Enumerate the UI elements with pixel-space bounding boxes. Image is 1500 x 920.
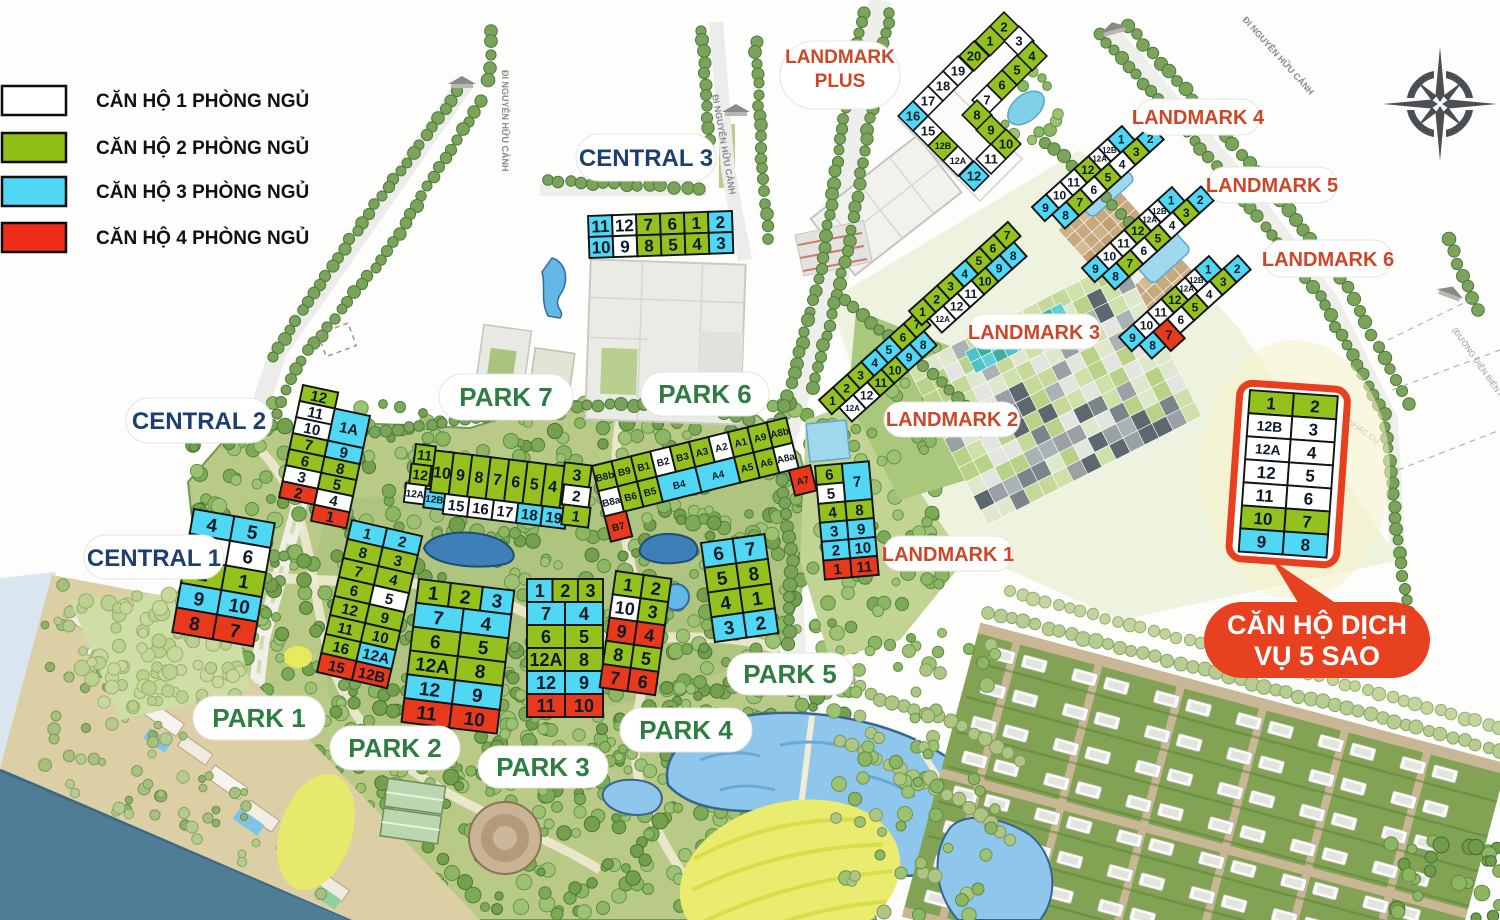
svg-text:9: 9	[1129, 331, 1136, 345]
svg-text:5: 5	[1155, 231, 1162, 245]
svg-text:VỤ 5 SAO: VỤ 5 SAO	[1254, 641, 1380, 671]
svg-text:12: 12	[860, 389, 874, 403]
svg-text:LANDMARK 6: LANDMARK 6	[1262, 249, 1394, 271]
svg-text:PARK 1: PARK 1	[212, 703, 305, 733]
svg-text:3: 3	[829, 523, 839, 541]
svg-text:8: 8	[579, 650, 589, 670]
svg-text:18: 18	[936, 79, 950, 94]
svg-text:CĂN HỘ 1 PHÒNG NGỦ: CĂN HỘ 1 PHÒNG NGỦ	[96, 90, 309, 112]
svg-text:12: 12	[615, 216, 635, 236]
svg-text:CĂN HỘ 3 PHÒNG NGỦ: CĂN HỘ 3 PHÒNG NGỦ	[96, 181, 309, 203]
svg-text:1: 1	[1266, 394, 1277, 414]
svg-text:LANDMARK 5: LANDMARK 5	[1206, 175, 1338, 197]
svg-text:9: 9	[996, 262, 1003, 276]
svg-text:2: 2	[831, 542, 841, 560]
svg-text:11: 11	[984, 152, 998, 167]
svg-text:8: 8	[644, 236, 654, 255]
svg-text:10: 10	[1253, 509, 1273, 529]
svg-text:12B: 12B	[935, 141, 952, 151]
svg-text:7: 7	[1302, 512, 1313, 532]
svg-text:3: 3	[716, 234, 726, 253]
svg-text:2: 2	[1000, 20, 1007, 35]
svg-text:3: 3	[1308, 420, 1319, 440]
svg-text:6: 6	[990, 241, 997, 255]
svg-text:10: 10	[999, 137, 1013, 152]
svg-text:10: 10	[1103, 249, 1117, 263]
svg-text:4: 4	[1028, 49, 1036, 64]
svg-text:PARK 4: PARK 4	[639, 715, 733, 745]
svg-text:4: 4	[1206, 288, 1213, 302]
svg-text:9: 9	[987, 123, 994, 138]
svg-text:2: 2	[843, 381, 850, 395]
svg-text:10: 10	[574, 696, 594, 716]
svg-text:10: 10	[591, 238, 611, 258]
svg-text:11: 11	[874, 376, 887, 390]
svg-text:12: 12	[950, 300, 964, 314]
svg-text:7: 7	[1004, 229, 1011, 243]
svg-text:5: 5	[1305, 466, 1316, 486]
svg-text:3: 3	[1183, 206, 1190, 220]
svg-text:10: 10	[227, 595, 251, 619]
svg-text:12: 12	[1131, 224, 1145, 238]
svg-text:12: 12	[1081, 163, 1095, 177]
svg-text:5: 5	[1013, 63, 1020, 78]
svg-text:5: 5	[579, 627, 589, 647]
svg-text:12B: 12B	[1256, 417, 1283, 435]
svg-text:PARK 3: PARK 3	[496, 752, 589, 782]
svg-text:8: 8	[1149, 338, 1156, 352]
svg-text:12A: 12A	[935, 315, 950, 324]
svg-text:3: 3	[857, 369, 864, 383]
svg-text:6: 6	[824, 466, 834, 484]
svg-text:7: 7	[983, 93, 990, 108]
svg-text:4: 4	[1306, 443, 1317, 463]
svg-text:3: 3	[1220, 275, 1227, 289]
svg-text:6: 6	[1140, 244, 1147, 258]
svg-text:1: 1	[1118, 133, 1125, 147]
svg-text:11: 11	[1067, 176, 1080, 190]
svg-text:10: 10	[432, 464, 452, 483]
svg-text:11: 11	[856, 558, 873, 576]
svg-text:9: 9	[1256, 532, 1267, 552]
svg-text:11: 11	[1255, 486, 1274, 506]
svg-text:5: 5	[826, 485, 836, 503]
svg-text:12B: 12B	[424, 494, 444, 507]
svg-text:19: 19	[544, 509, 563, 528]
svg-text:4: 4	[1169, 219, 1176, 233]
svg-text:PLUS: PLUS	[815, 71, 866, 92]
svg-text:7: 7	[643, 215, 653, 234]
svg-text:PARK 5: PARK 5	[743, 659, 836, 689]
svg-text:12A: 12A	[405, 488, 425, 501]
svg-text:CĂN HỘ 4 PHÒNG NGỦ: CĂN HỘ 4 PHÒNG NGỦ	[96, 227, 309, 249]
svg-text:7: 7	[1165, 328, 1172, 343]
svg-text:3: 3	[947, 280, 954, 294]
svg-text:6: 6	[541, 627, 551, 647]
svg-text:7: 7	[1126, 257, 1133, 271]
svg-text:12: 12	[1168, 293, 1182, 307]
svg-text:2: 2	[1234, 262, 1241, 276]
svg-text:5: 5	[886, 343, 893, 357]
svg-text:4: 4	[961, 267, 968, 281]
svg-text:16: 16	[906, 109, 920, 124]
svg-text:8: 8	[1010, 249, 1017, 263]
svg-text:LANDMARK 3: LANDMARK 3	[968, 322, 1100, 344]
svg-text:3: 3	[585, 581, 595, 601]
svg-text:6: 6	[998, 78, 1005, 93]
svg-text:1: 1	[919, 305, 926, 319]
svg-text:7: 7	[541, 604, 551, 624]
svg-text:LANDMARK 2: LANDMARK 2	[886, 409, 1018, 431]
svg-text:5: 5	[668, 235, 678, 254]
svg-text:ĐI NGUYỄN HỮU CẢNH: ĐI NGUYỄN HỮU CẢNH	[500, 70, 511, 171]
svg-text:8: 8	[855, 502, 865, 520]
svg-text:1: 1	[1205, 263, 1212, 277]
svg-text:6: 6	[1303, 489, 1314, 509]
svg-text:11: 11	[415, 703, 438, 726]
svg-text:12: 12	[1256, 463, 1276, 483]
svg-text:2: 2	[1310, 397, 1321, 417]
svg-text:12: 12	[967, 169, 981, 184]
svg-text:LANDMARK: LANDMARK	[785, 47, 895, 68]
svg-text:LANDMARK 1: LANDMARK 1	[882, 544, 1014, 566]
svg-text:1: 1	[829, 394, 836, 408]
svg-text:11: 11	[536, 696, 555, 716]
svg-text:8: 8	[1062, 208, 1069, 222]
svg-text:12A: 12A	[845, 404, 860, 413]
svg-text:PARK 7: PARK 7	[459, 382, 552, 412]
svg-text:18: 18	[520, 506, 539, 525]
svg-text:6: 6	[1090, 183, 1097, 197]
svg-text:8: 8	[920, 338, 927, 352]
svg-text:LANDMARK 4: LANDMARK 4	[1132, 107, 1265, 129]
svg-text:12: 12	[412, 466, 430, 484]
svg-text:8: 8	[1112, 269, 1119, 283]
svg-text:9: 9	[906, 351, 913, 365]
svg-text:11: 11	[1117, 237, 1130, 251]
svg-text:5: 5	[1192, 300, 1199, 314]
svg-text:6: 6	[1177, 313, 1184, 327]
svg-text:1: 1	[1168, 194, 1175, 208]
svg-text:11: 11	[591, 217, 610, 237]
svg-text:4: 4	[692, 235, 703, 254]
svg-text:2: 2	[715, 213, 725, 232]
svg-text:19: 19	[951, 64, 965, 79]
svg-text:PARK 2: PARK 2	[348, 733, 441, 763]
svg-text:5: 5	[1105, 170, 1112, 184]
svg-text:CENTRAL 2: CENTRAL 2	[132, 408, 266, 435]
svg-text:9: 9	[856, 521, 866, 539]
svg-text:7: 7	[852, 473, 862, 491]
svg-text:15: 15	[447, 497, 466, 516]
svg-text:9: 9	[1042, 201, 1049, 215]
svg-text:12: 12	[536, 673, 556, 693]
svg-text:9: 9	[620, 237, 630, 256]
svg-text:1: 1	[986, 34, 993, 49]
svg-text:20: 20	[967, 49, 981, 64]
svg-text:2: 2	[560, 581, 570, 601]
svg-text:CĂN HỘ DỊCH: CĂN HỘ DỊCH	[1227, 609, 1407, 640]
svg-text:9: 9	[579, 673, 589, 693]
svg-text:3: 3	[1015, 34, 1022, 49]
svg-text:11: 11	[1154, 306, 1167, 320]
svg-text:8: 8	[1300, 535, 1311, 555]
svg-text:15: 15	[921, 124, 935, 139]
svg-text:17: 17	[496, 503, 515, 522]
svg-text:10: 10	[1053, 188, 1067, 202]
svg-text:10: 10	[614, 597, 637, 620]
svg-text:16: 16	[471, 500, 490, 519]
svg-text:17: 17	[921, 94, 935, 109]
svg-text:5: 5	[976, 254, 983, 268]
svg-text:10: 10	[462, 708, 486, 731]
svg-text:CENTRAL 1: CENTRAL 1	[87, 545, 221, 572]
svg-text:12A: 12A	[950, 156, 967, 166]
svg-text:1: 1	[535, 581, 545, 601]
svg-text:CENTRAL 3: CENTRAL 3	[579, 145, 713, 172]
svg-text:1: 1	[691, 214, 701, 233]
svg-text:2: 2	[1197, 193, 1204, 207]
svg-text:10: 10	[854, 539, 872, 557]
svg-text:4: 4	[579, 604, 589, 624]
svg-text:12A: 12A	[1255, 440, 1282, 458]
svg-text:PARK 6: PARK 6	[658, 379, 751, 409]
svg-text:6: 6	[667, 215, 677, 234]
svg-text:4: 4	[1119, 158, 1126, 172]
svg-text:6: 6	[900, 330, 907, 344]
svg-text:CĂN HỘ 2 PHÒNG NGỦ: CĂN HỘ 2 PHÒNG NGỦ	[96, 137, 309, 159]
svg-text:11: 11	[964, 287, 977, 301]
svg-text:12: 12	[418, 679, 442, 702]
svg-text:4: 4	[871, 356, 878, 370]
svg-text:10: 10	[978, 274, 992, 288]
svg-text:11: 11	[416, 446, 433, 464]
svg-text:3: 3	[1133, 145, 1140, 159]
svg-text:9: 9	[1092, 262, 1099, 276]
svg-text:10: 10	[888, 363, 902, 377]
svg-text:2: 2	[933, 292, 940, 306]
svg-text:8: 8	[973, 108, 980, 123]
svg-text:1: 1	[833, 561, 843, 579]
svg-text:10: 10	[1140, 318, 1154, 332]
svg-text:7: 7	[1076, 196, 1083, 210]
svg-text:12A: 12A	[529, 650, 562, 670]
